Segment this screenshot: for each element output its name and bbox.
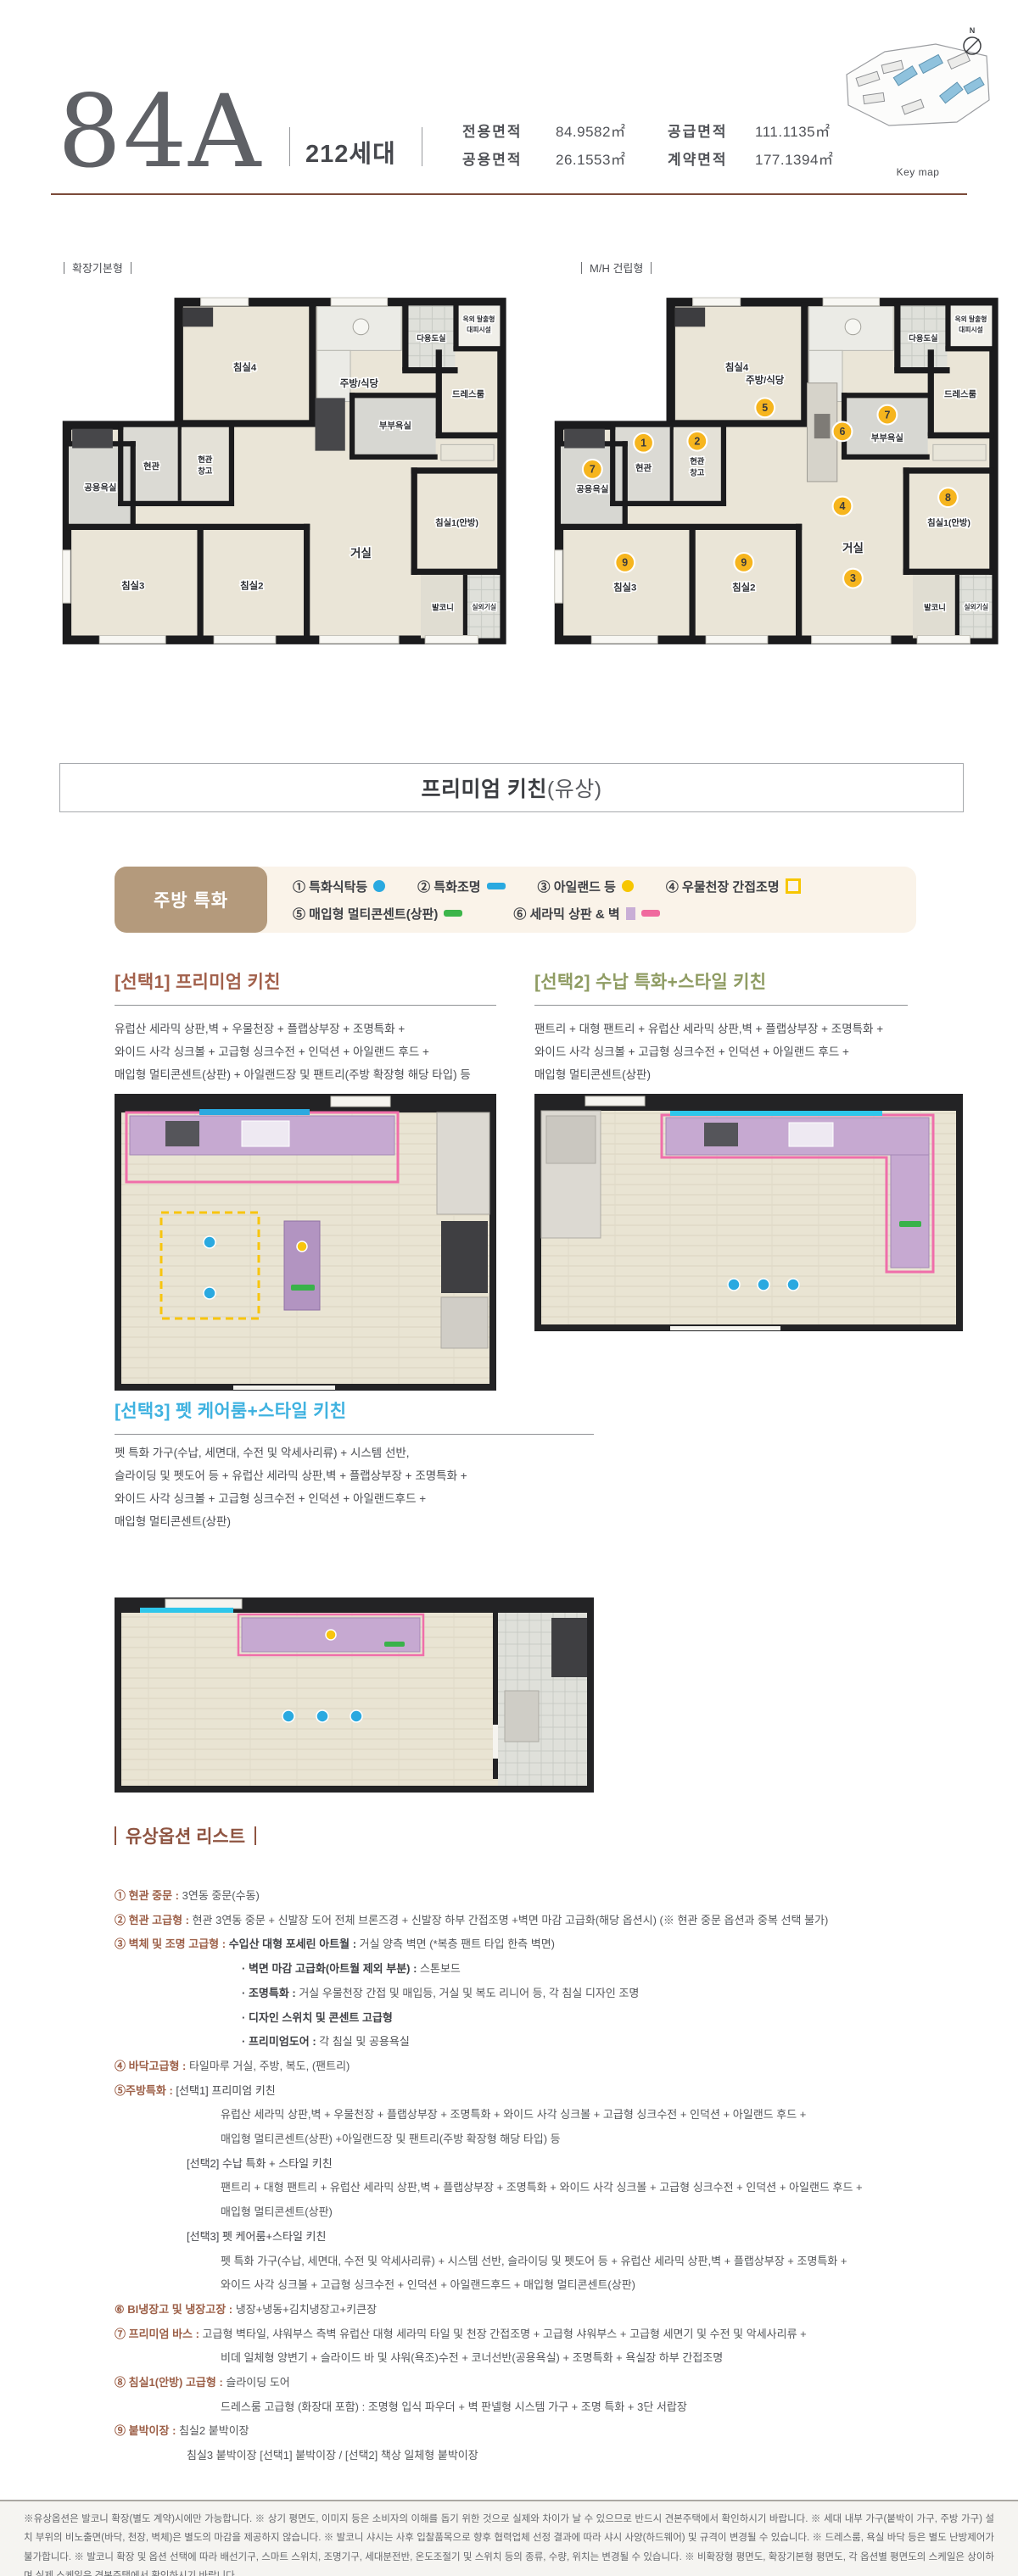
pet-door	[493, 1725, 498, 1759]
select2-heading: [선택2] 수납 특화+스타일 키친	[534, 968, 908, 1006]
option-line: ① 현관 중문 : 3연동 중문(수동)	[115, 1884, 1001, 1909]
dining-light-marker	[204, 1287, 215, 1299]
svg-text:침실1(안방): 침실1(안방)	[435, 517, 478, 528]
dining-light-marker	[204, 1236, 215, 1248]
area-label: 공용면적	[462, 148, 523, 169]
legend-item: ④ 우물천장 간접조명	[666, 878, 801, 895]
svg-text:3: 3	[850, 572, 856, 584]
pantry-counter-highlight	[891, 1155, 929, 1268]
option-line: · 프리미엄도어 : 각 침실 및 공용욕실	[115, 2030, 1001, 2055]
special-lighting-highlight	[670, 1111, 882, 1116]
svg-text:침실4: 침실4	[233, 361, 257, 373]
special-lighting-swatch-icon	[487, 883, 506, 889]
kitchen-legend: 주방 특화 ① 특화식탁등 ② 특화조명 ③ 아일랜드 등 ④ 우물천장 간접조…	[115, 867, 916, 933]
divider	[422, 127, 422, 166]
tick	[115, 1826, 116, 1845]
svg-text:7: 7	[590, 464, 596, 476]
svg-text:침실3: 침실3	[121, 580, 144, 592]
option-line: ③ 벽체 및 조명 고급형 : 수입산 대형 포세린 아트월 : 거실 양측 벽…	[115, 1932, 1001, 1957]
kitchen-plan-pet-care	[115, 1597, 594, 1797]
svg-text:부부욕실: 부부욕실	[871, 432, 903, 443]
area-label: 계약면적	[668, 148, 728, 169]
option-line: 침실3 붙박이장 [선택1] 붙박이장 / [선택2] 책상 일체형 붙박이장	[115, 2444, 1001, 2468]
svg-text:2: 2	[694, 435, 700, 447]
legend-item: ⑤ 매입형 멀티콘센트(상판)	[293, 905, 462, 923]
dining-light-marker	[316, 1710, 328, 1722]
section-title: 프리미엄 키친(유상)	[421, 772, 601, 803]
legend-item: ② 특화조명	[417, 878, 505, 895]
option-line: 드레스룸 고급형 (화장대 포함) : 조명형 입식 파우더 + 벽 판넬형 시…	[115, 2395, 1001, 2420]
paid-options-heading: 유상옵션 리스트	[115, 1823, 256, 1848]
option-line: [선택3] 펫 케어룸+스타일 키친	[115, 2225, 1001, 2250]
svg-text:거실: 거실	[842, 542, 864, 555]
household-count: 212세대	[305, 134, 396, 170]
tick	[131, 262, 131, 274]
option-line: 펫 특화 가구(수납, 세면대, 수전 및 악세사리류) + 시스템 선반, 슬…	[115, 2250, 1001, 2274]
tick	[581, 262, 582, 274]
dining-light-marker	[787, 1279, 799, 1291]
paid-options-list: ① 현관 중문 : 3연동 중문(수동) ② 현관 고급형 : 현관 3연동 중…	[115, 1884, 1001, 2468]
svg-text:공용욕실: 공용욕실	[576, 483, 608, 494]
ceramic-top-swatch-icon	[626, 907, 635, 920]
floorplan-model-house: 침실4 주방/식당 다용도실 옥외 탈출형 대피시설 드레스룸 현관 현관 창고…	[543, 295, 1001, 651]
svg-text:주방/식당: 주방/식당	[340, 377, 379, 389]
svg-text:부부욕실: 부부욕실	[379, 421, 411, 432]
svg-text:주방/식당: 주방/식당	[746, 374, 785, 386]
option-line: · 디자인 스위치 및 콘센트 고급형	[115, 2006, 1001, 2031]
outlet-marker	[291, 1285, 315, 1291]
legend-item: ① 특화식탁등	[293, 878, 385, 895]
keymap-label: Key map	[838, 166, 998, 178]
svg-text:드레스룸: 드레스룸	[452, 388, 485, 399]
area-value: 111.1135㎡	[755, 120, 831, 141]
area-value: 177.1394㎡	[755, 148, 833, 169]
select3-heading: [선택3] 펫 케어룸+스타일 키친	[115, 1397, 594, 1435]
svg-text:침실3: 침실3	[613, 582, 636, 594]
select1-desc: 유럽산 세라믹 상판,벽 + 우물천장 + 플랩상부장 + 조명특화 + 와이드…	[115, 1018, 471, 1086]
ceramic-wall-swatch-icon	[641, 910, 660, 917]
brochure-page: 84A 212세대 전용면적 84.9582㎡ 공용면적 26.1553㎡ 공급…	[0, 0, 1018, 2576]
select3-desc: 펫 특화 가구(수납, 세면대, 수전 및 악세사리류) + 시스템 선반, 슬…	[115, 1441, 467, 1533]
select2-desc: 팬트리 + 대형 팬트리 + 유럽산 세라믹 상판,벽 + 플랩상부장 + 조명…	[534, 1018, 883, 1086]
option-line: ② 현관 고급형 : 현관 3연동 중문 + 신발장 도어 전체 브론즈경 + …	[115, 1909, 1001, 1933]
svg-text:다용도실: 다용도실	[417, 333, 445, 343]
svg-text:침실4: 침실4	[725, 361, 749, 373]
option-line: · 조명특화 : 거실 우물천장 간접 및 매입등, 거실 및 복도 리니어 등…	[115, 1982, 1001, 2006]
tick	[64, 262, 64, 274]
area-label: 공급면적	[668, 120, 728, 141]
special-lighting-highlight	[199, 1109, 310, 1115]
svg-text:현관: 현관	[198, 454, 213, 464]
svg-text:실외기실: 실외기실	[964, 602, 988, 611]
special-lighting-highlight	[140, 1608, 233, 1613]
pet-wash-unit	[505, 1691, 539, 1742]
header-rule	[51, 193, 967, 195]
svg-text:침실2: 침실2	[240, 580, 263, 592]
section-title-box: 프리미엄 키친(유상)	[59, 763, 964, 812]
footer: ※유상옵션은 발코니 확장(별도 계약)시에만 가능합니다. ※ 상기 평면도,…	[0, 2500, 1018, 2576]
option-line: 매입형 멀티콘센트(상판)	[115, 2200, 1001, 2225]
svg-text:다용도실: 다용도실	[909, 333, 937, 343]
option-line: ⑥ BI냉장고 및 냉장고장 : 냉장+냉동+김치냉장고+키큰장	[115, 2298, 1001, 2322]
island-light-marker	[326, 1630, 336, 1640]
outlet-marker	[899, 1221, 921, 1227]
legend-tag: 주방 특화	[115, 867, 267, 933]
island-light-marker	[297, 1241, 307, 1252]
option-line: ④ 바닥고급형 : 타일마루 거실, 주방, 복도, (팬트리)	[115, 2055, 1001, 2079]
option-line: ⑨ 붙박이장 : 침실2 붙박이장	[115, 2419, 1001, 2444]
option-line: · 벽면 마감 고급화(아트월 제외 부분) : 스톤보드	[115, 1957, 1001, 1982]
area-value: 26.1553㎡	[556, 148, 625, 169]
svg-text:침실1(안방): 침실1(안방)	[927, 517, 970, 528]
option-line: 팬트리 + 대형 팬트리 + 유럽산 세라믹 상판,벽 + 플랩상부장 + 조명…	[115, 2176, 1001, 2200]
svg-text:대피시설: 대피시설	[959, 326, 983, 334]
select1-heading: [선택1] 프리미엄 키친	[115, 968, 496, 1006]
svg-text:4: 4	[840, 500, 846, 512]
page-title: 84A	[58, 81, 262, 181]
island-highlight	[284, 1221, 320, 1310]
option-line: ⑧ 침실1(안방) 고급형 : 슬라이딩 도어	[115, 2371, 1001, 2395]
divider	[289, 127, 290, 166]
option-line: ⑤주방특화 : [선택1] 프리미엄 키친	[115, 2079, 1001, 2104]
svg-text:실외기실: 실외기실	[472, 602, 496, 611]
outlet-marker	[384, 1642, 405, 1647]
dining-light-marker	[282, 1710, 294, 1722]
svg-text:공용욕실: 공용욕실	[84, 482, 116, 493]
svg-text:1: 1	[640, 437, 646, 449]
svg-text:8: 8	[945, 492, 951, 504]
option-line: 비데 일체형 양변기 + 슬라이드 바 및 샤워(욕조)수전 + 코너선반(공용…	[115, 2346, 1001, 2371]
option-line: 매입형 멀티콘센트(상판) +아일랜드장 및 팬트리(주방 확장형 해당 타입)…	[115, 2127, 1001, 2152]
svg-text:발코니: 발코니	[432, 602, 454, 611]
svg-text:N: N	[970, 26, 976, 35]
svg-text:현관: 현관	[690, 456, 705, 466]
dining-light-swatch-icon	[373, 880, 385, 892]
floorplan-extended-basic: 침실4 주방/식당 다용도실 옥외 탈출형 대피시설 드레스룸 현관 현관 창고…	[51, 295, 509, 651]
svg-text:창고: 창고	[690, 468, 705, 477]
svg-text:옥외 탈출형: 옥외 탈출형	[463, 315, 495, 323]
legend-item: ⑥ 세라믹 상판 & 벽	[513, 905, 659, 923]
svg-text:드레스룸: 드레스룸	[944, 388, 977, 399]
svg-text:9: 9	[741, 557, 747, 569]
svg-text:5: 5	[762, 402, 768, 414]
svg-text:7: 7	[884, 409, 890, 421]
tick	[255, 1826, 256, 1845]
dining-light-marker	[728, 1279, 740, 1291]
svg-text:거실: 거실	[350, 547, 372, 560]
ceiling-light-swatch-icon	[786, 878, 801, 894]
kitchen-plan-storage-style	[534, 1094, 963, 1335]
svg-text:발코니: 발코니	[924, 602, 946, 611]
plan-type-label-right: M/H 건립형	[581, 259, 652, 276]
svg-text:현관: 현관	[635, 463, 652, 474]
keymap: N	[838, 22, 998, 163]
area-value: 84.9582㎡	[556, 120, 625, 141]
kitchen-plan-premium	[115, 1094, 496, 1395]
plan-type-label-left: 확장기본형	[64, 259, 131, 276]
svg-text:6: 6	[840, 426, 846, 438]
outlet-swatch-icon	[444, 910, 462, 917]
compass-icon: N	[964, 26, 981, 54]
svg-text:현관: 현관	[143, 460, 160, 471]
disclaimer-text: ※유상옵션은 발코니 확장(별도 계약)시에만 가능합니다. ※ 상기 평면도,…	[0, 2501, 1018, 2576]
svg-text:침실2: 침실2	[732, 582, 755, 594]
svg-text:옥외 탈출형: 옥외 탈출형	[955, 315, 987, 323]
legend-item: ③ 아일랜드 등	[538, 878, 634, 895]
island-light-swatch-icon	[622, 880, 634, 892]
svg-text:대피시설: 대피시설	[467, 326, 491, 334]
svg-text:창고: 창고	[198, 466, 213, 476]
dining-light-marker	[350, 1710, 362, 1722]
svg-text:9: 9	[622, 557, 628, 569]
option-line: 유럽산 세라믹 상판,벽 + 우물천장 + 플랩상부장 + 조명특화 + 와이드…	[115, 2103, 1001, 2127]
dining-light-marker	[758, 1279, 769, 1291]
option-line: ⑦ 프리미엄 바스 : 고급형 벽타일, 샤워부스 측벽 유럽산 대형 세라믹 …	[115, 2322, 1001, 2347]
tick	[651, 262, 652, 274]
option-line: [선택2] 수납 특화 + 스타일 키친	[115, 2152, 1001, 2177]
option-line: 와이드 사각 싱크볼 + 고급형 싱크수전 + 인덕션 + 아일랜드후드 + 매…	[115, 2273, 1001, 2298]
area-label: 전용면적	[462, 120, 523, 141]
